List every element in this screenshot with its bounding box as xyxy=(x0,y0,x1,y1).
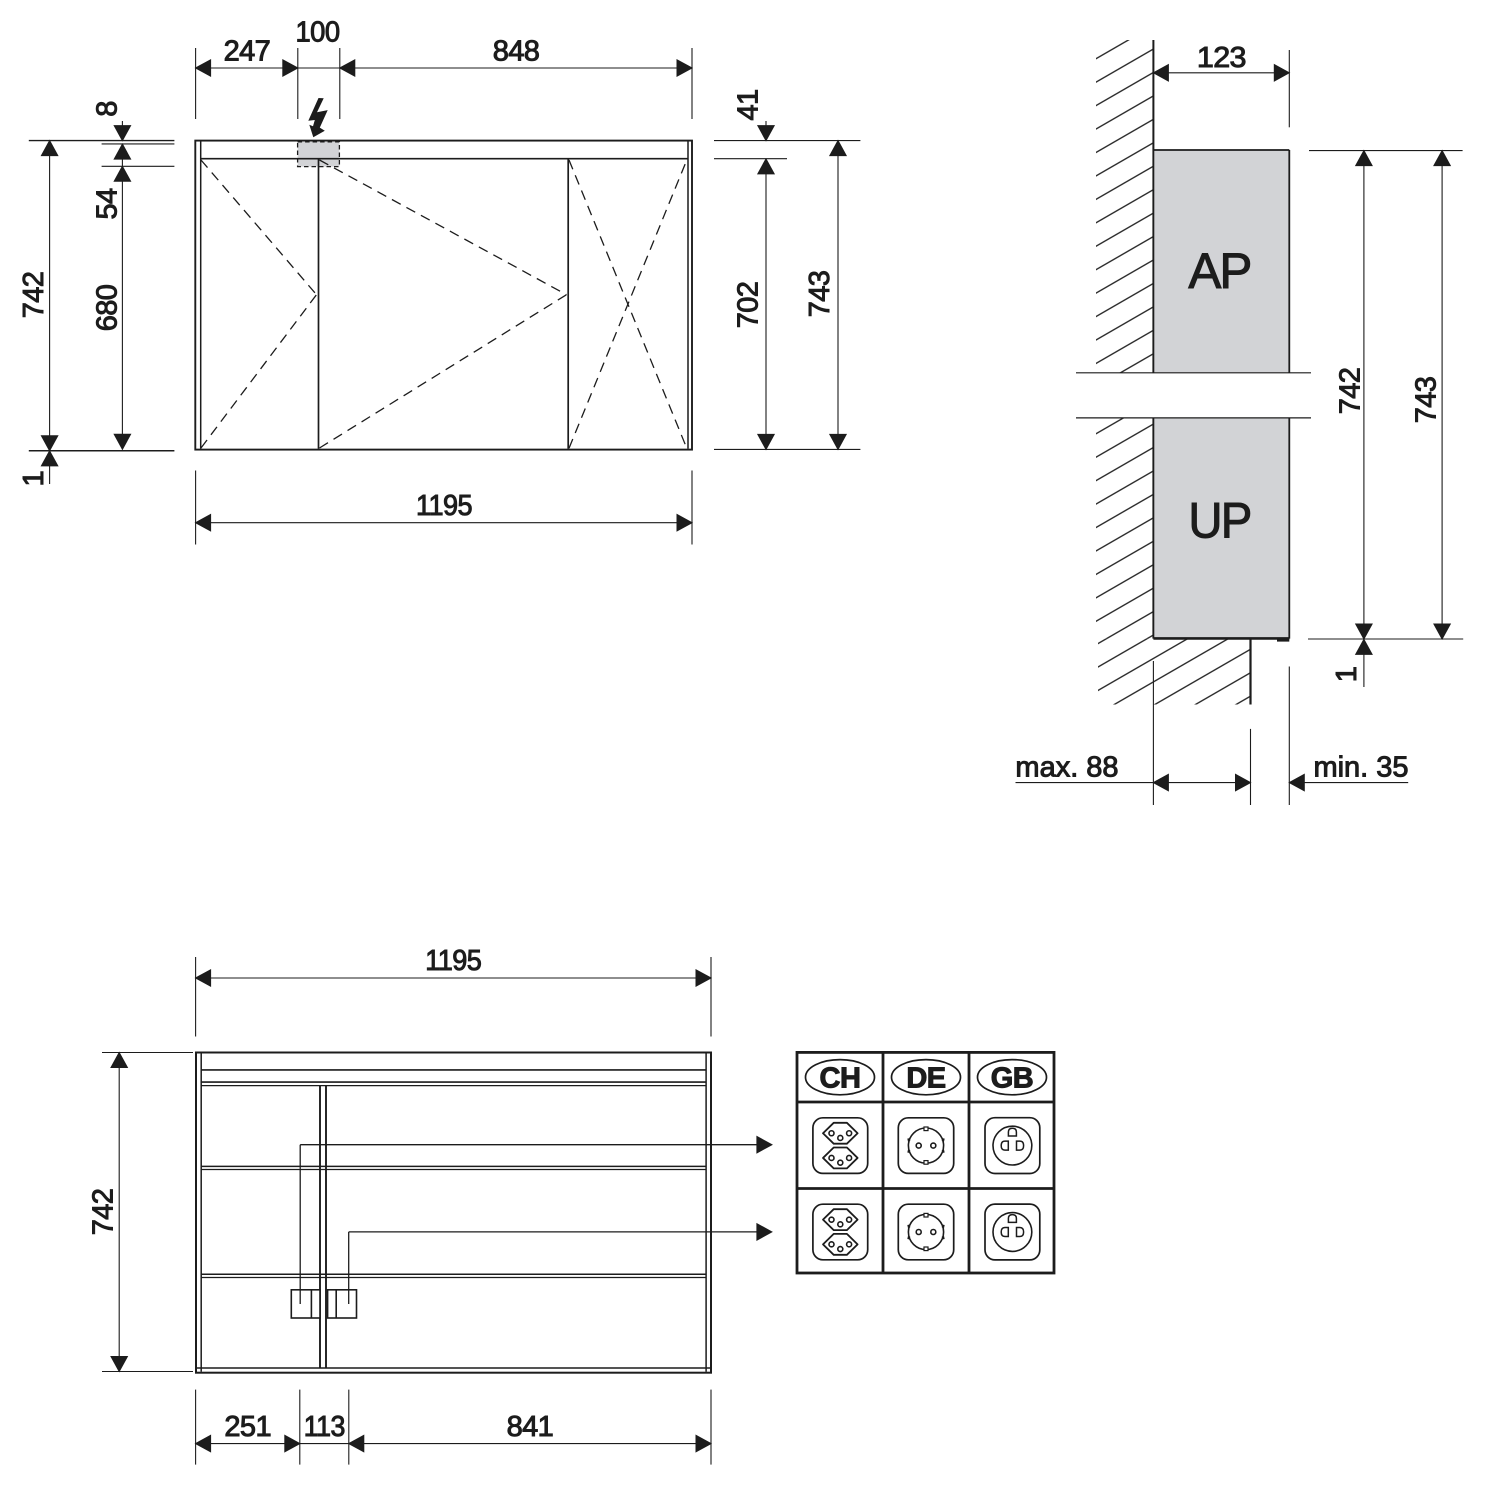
svg-text:251: 251 xyxy=(224,1411,271,1443)
svg-text:841: 841 xyxy=(507,1411,554,1443)
svg-text:1195: 1195 xyxy=(425,945,481,977)
svg-text:UP: UP xyxy=(1188,493,1250,549)
svg-text:743: 743 xyxy=(804,271,836,318)
svg-text:CH: CH xyxy=(820,1063,861,1095)
svg-text:848: 848 xyxy=(493,36,540,68)
svg-text:247: 247 xyxy=(224,36,271,68)
svg-text:113: 113 xyxy=(304,1411,345,1443)
svg-text:41: 41 xyxy=(733,89,765,120)
svg-text:8: 8 xyxy=(92,101,124,117)
svg-text:AP: AP xyxy=(1188,243,1250,299)
svg-text:min. 35: min. 35 xyxy=(1313,752,1408,784)
svg-text:742: 742 xyxy=(87,1189,119,1236)
svg-text:max. 88: max. 88 xyxy=(1015,752,1118,784)
svg-text:1: 1 xyxy=(18,471,50,487)
svg-text:1: 1 xyxy=(1331,667,1363,683)
svg-text:743: 743 xyxy=(1410,377,1442,424)
svg-text:DE: DE xyxy=(906,1063,945,1095)
svg-text:100: 100 xyxy=(296,17,340,49)
svg-text:680: 680 xyxy=(92,285,124,332)
svg-text:702: 702 xyxy=(733,282,765,329)
svg-text:GB: GB xyxy=(991,1063,1034,1095)
svg-text:123: 123 xyxy=(1197,42,1246,74)
svg-text:1195: 1195 xyxy=(416,490,472,522)
svg-text:742: 742 xyxy=(1335,368,1367,415)
svg-text:742: 742 xyxy=(18,272,50,319)
svg-text:54: 54 xyxy=(92,188,124,220)
